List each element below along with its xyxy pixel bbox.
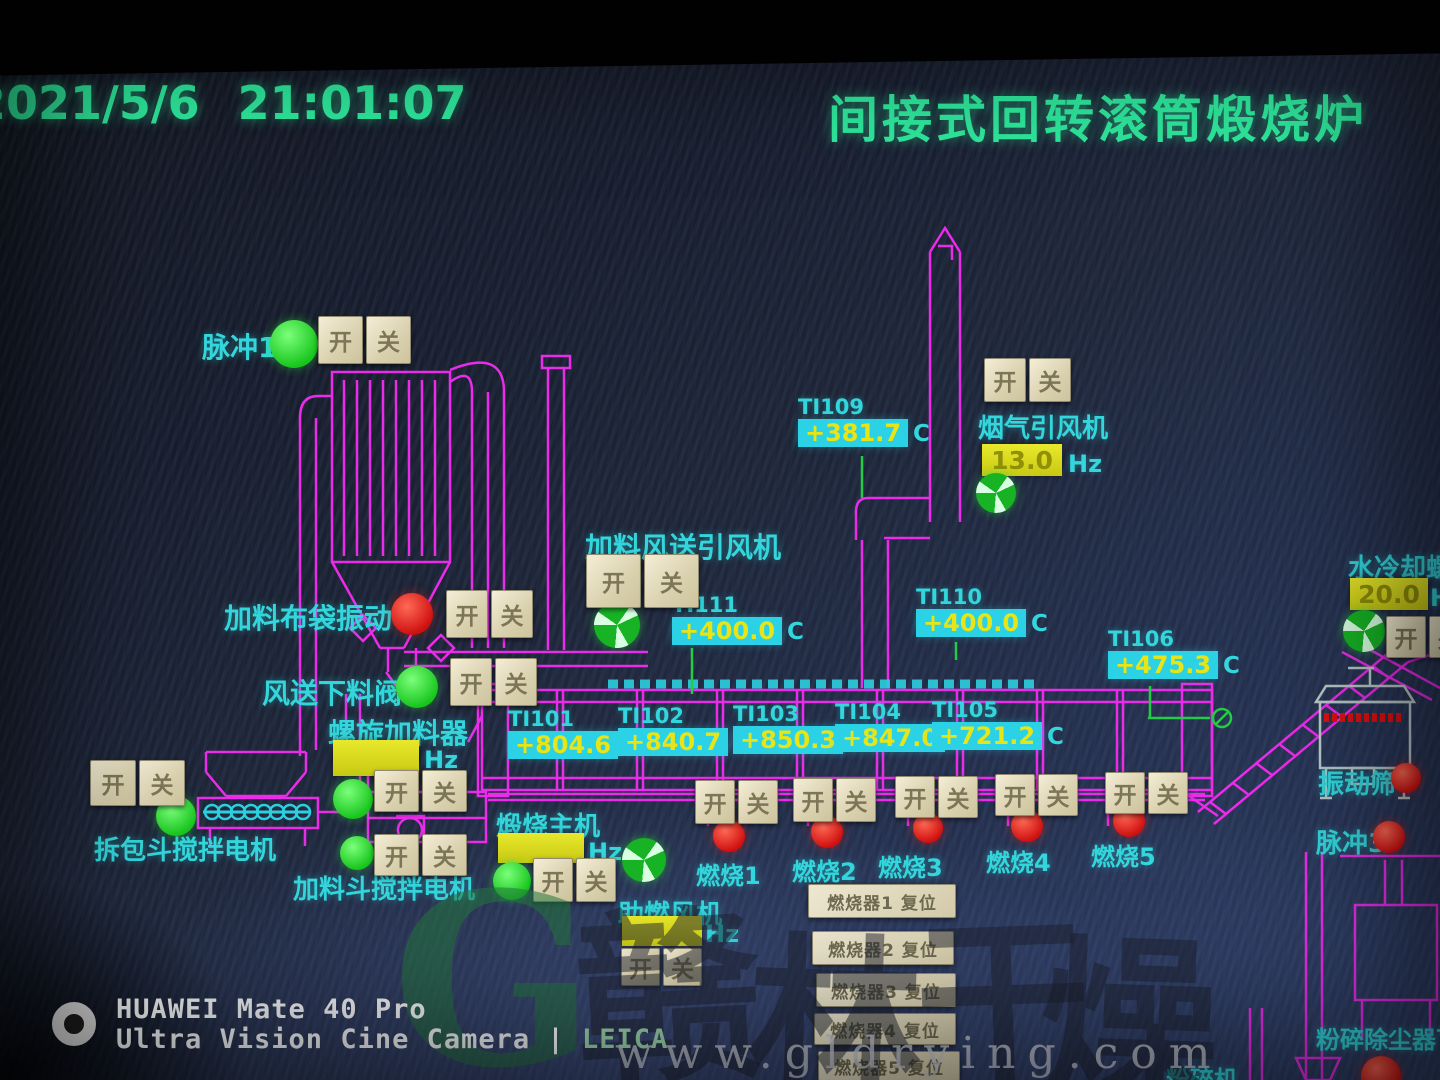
combustion-fan-freq-field[interactable] [622, 916, 702, 946]
feed-mixer-indicator-1 [333, 779, 373, 819]
close-button[interactable]: 关 [422, 834, 467, 876]
open-button[interactable]: 开 [90, 760, 136, 806]
feed-mixer-indicator-2 [340, 836, 374, 870]
leica-brand: LEICA [582, 1024, 668, 1055]
close-button[interactable]: 关 [139, 760, 185, 806]
burner5-reset-button[interactable]: 燃烧器5 复位 [818, 1051, 960, 1080]
datetime: 2021/5/6 21:01:07 [0, 76, 467, 130]
screen-heater-band [1324, 713, 1401, 722]
burner2-reset-button[interactable]: 燃烧器2 复位 [812, 931, 954, 965]
combustion-fan-switch: 开 关 [621, 948, 702, 986]
sensor-unit: C [787, 619, 804, 645]
flue-fan-switch: 开 关 [984, 358, 1071, 402]
pulse1-switch: 开 关 [318, 316, 411, 364]
burner4-switch: 开 关 [995, 774, 1078, 816]
sensor-unit: C [1031, 611, 1048, 637]
sensor-value: +847.0 [835, 724, 945, 752]
sensor-tag: TI105 [932, 699, 1064, 722]
bag-vibration-indicator [391, 593, 433, 635]
sensor-value: +400.0 [916, 609, 1026, 637]
combustion-fan-indicator [622, 838, 666, 882]
burner3-switch: 开 关 [895, 776, 978, 818]
open-button[interactable]: 开 [895, 776, 935, 818]
calciner-switch: 开 关 [533, 858, 616, 902]
camera-line2-text: Ultra Vision Cine Camera [116, 1024, 530, 1055]
open-button[interactable]: 开 [793, 778, 833, 822]
open-button[interactable]: 开 [533, 858, 573, 902]
feed-mixer-switch-2: 开 关 [374, 834, 467, 876]
water-screw-switch: 开 关 [1386, 616, 1440, 658]
sensor-value: +400.0 [672, 617, 782, 645]
close-button[interactable]: 关 [938, 776, 978, 818]
sensor-value: +850.3 [733, 726, 843, 754]
unpack-mixer-switch: 开 关 [90, 760, 185, 806]
close-button[interactable]: 关 [1429, 616, 1440, 658]
burner1-label: 燃烧1 [696, 856, 761, 891]
pulse1-indicator [270, 320, 318, 368]
close-button[interactable]: 关 [836, 778, 876, 822]
sensor-TI105: TI105 +721.2C [932, 699, 1064, 750]
open-button[interactable]: 开 [1105, 772, 1145, 814]
burner1-reset-button[interactable]: 燃烧器1 复位 [808, 884, 956, 918]
blow-down-valve-indicator [396, 666, 438, 708]
sensor-tag: TI106 [1108, 628, 1240, 651]
open-button[interactable]: 开 [374, 770, 419, 812]
feed-air-fan-indicator [594, 602, 640, 648]
bag-vibration-label: 加料布袋振动 [224, 597, 392, 637]
sensor-value: +475.3 [1108, 651, 1218, 679]
burner3-label: 燃烧3 [878, 848, 943, 883]
close-button[interactable]: 关 [663, 948, 702, 986]
close-button[interactable]: 关 [738, 780, 778, 824]
close-button[interactable]: 关 [495, 658, 537, 706]
sensor-TI102: TI102 +840.7C [618, 705, 750, 756]
close-button[interactable]: 关 [576, 858, 616, 902]
close-button[interactable]: 关 [1029, 358, 1071, 402]
sensor-TI110: TI110 +400.0C [916, 586, 1048, 637]
open-button[interactable]: 开 [984, 358, 1026, 402]
close-button[interactable]: 关 [422, 770, 467, 812]
burner1-indicator [713, 820, 745, 852]
close-button[interactable]: 关 [366, 316, 411, 364]
unpack-mixer-label: 拆包斗搅拌电机 [94, 830, 276, 867]
freq-value: 13.0 [991, 446, 1053, 475]
flue-fan-label: 烟气引风机 [978, 408, 1108, 445]
sensor-unit: C [1223, 653, 1240, 679]
flue-fan-freq-field[interactable]: 13.0 [982, 444, 1062, 476]
sensor-unit: C [1047, 724, 1064, 750]
camera-watermark-line1: HUAWEI Mate 40 Pro [116, 994, 427, 1025]
burner5-switch: 开 关 [1105, 772, 1188, 814]
water-screw-freq-field[interactable]: 20.0 [1350, 578, 1428, 610]
blow-down-valve-switch: 开 关 [450, 658, 537, 706]
close-button[interactable]: 关 [491, 590, 533, 638]
feed-air-fan-switch: 开 关 [586, 554, 699, 608]
open-button[interactable]: 开 [318, 316, 363, 364]
sensor-tag: TI102 [618, 705, 750, 728]
close-button[interactable]: 关 [1148, 772, 1188, 814]
pulse3-indicator [1373, 821, 1405, 853]
sensor-value: +840.7 [618, 728, 728, 756]
burner2-switch: 开 关 [793, 778, 876, 822]
water-screw-freq-unit: Hz [1430, 584, 1440, 612]
water-screw-indicator [1343, 610, 1385, 652]
sensor-tag: TI110 [916, 586, 1048, 609]
burner5-label: 燃烧5 [1091, 837, 1156, 872]
burner4-label: 燃烧4 [986, 843, 1051, 878]
burner4-reset-button[interactable]: 燃烧器4 复位 [814, 1013, 956, 1045]
open-button[interactable]: 开 [586, 554, 641, 608]
vibrating-screen-indicator [1391, 763, 1421, 793]
sensor-TI109: TI109 +381.7C [798, 396, 930, 447]
burner1-switch: 开 关 [695, 780, 778, 824]
close-button[interactable]: 关 [644, 554, 699, 608]
camera-watermark-line2: Ultra Vision Cine Camera | LEICA [116, 1024, 668, 1055]
calciner-indicator [493, 862, 531, 900]
sensor-value: +804.6 [508, 731, 618, 759]
hmi-screen-photo: 2021/5/6 21:01:07 间接式回转滚筒煅烧炉 TI109 +381.… [0, 0, 1440, 1080]
open-button[interactable]: 开 [695, 780, 735, 824]
sensor-unit: C [913, 421, 930, 447]
open-button[interactable]: 开 [374, 834, 419, 876]
open-button[interactable]: 开 [446, 590, 488, 638]
burner2-label: 燃烧2 [792, 852, 857, 887]
sensor-TI106: TI106 +475.3C [1108, 628, 1240, 679]
open-button[interactable]: 开 [1386, 616, 1426, 658]
feed-mixer-switch-1: 开 关 [374, 770, 467, 812]
sensor-value: +721.2 [932, 722, 1042, 750]
pulse1-label: 脉冲1 [202, 326, 277, 366]
open-button[interactable]: 开 [621, 948, 660, 986]
sensor-value: +381.7 [798, 419, 908, 447]
page-title: 间接式回转滚筒煅烧炉 [828, 80, 1368, 152]
crusher-dust-discharge-label: 粉碎除尘器下料 [1316, 1020, 1440, 1055]
camera-lens-icon [52, 1002, 96, 1046]
blow-down-valve-label: 风送下料阀 [262, 672, 402, 712]
flue-fan-freq-unit: Hz [1068, 450, 1102, 478]
close-button[interactable]: 关 [1038, 774, 1078, 816]
burner3-reset-button[interactable]: 燃烧器3 复位 [816, 973, 956, 1007]
crusher-label: 粉碎机 [1166, 1060, 1238, 1080]
freq-value: 20.0 [1358, 580, 1420, 609]
combustion-fan-freq-unit: Hz [705, 920, 739, 948]
camera-separator: | [547, 1024, 564, 1055]
open-button[interactable]: 开 [450, 658, 492, 706]
sensor-tag: TI109 [798, 396, 930, 419]
open-button[interactable]: 开 [995, 774, 1035, 816]
bag-vibration-switch: 开 关 [446, 590, 533, 638]
flue-fan-indicator [976, 473, 1016, 513]
vibrating-screen-label: 振动筛 [1318, 764, 1396, 801]
